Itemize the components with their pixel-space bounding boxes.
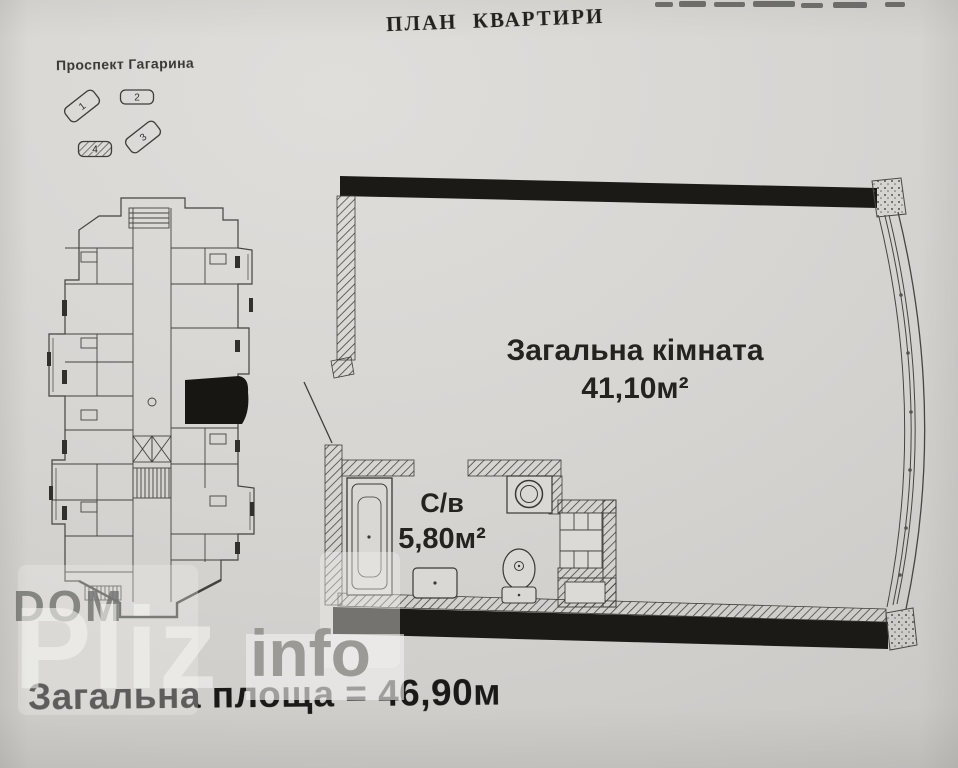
site-plan: 1 2 3 4 <box>55 80 185 170</box>
washbasin <box>413 568 457 598</box>
concrete-column-top <box>872 178 906 217</box>
bathroom-label: С/в <box>420 488 464 518</box>
apartment-plan: Загальна кімната 41,10м² С/в 5,80м² <box>295 165 940 660</box>
exterior-wall-top <box>340 176 877 208</box>
elevator-core <box>85 208 171 600</box>
building-marker-3: 3 <box>124 119 163 155</box>
washing-machine <box>507 476 552 513</box>
highlighted-apartment-unit <box>185 376 248 424</box>
bathroom-wall-top-left <box>342 460 414 476</box>
window-wall-curved <box>879 212 925 609</box>
scanned-floor-plan-page: ПЛАН КВАРТИРИ Проспект Гагарина 1 2 <box>0 0 958 768</box>
bathroom-wall-top-right <box>468 460 561 476</box>
building-number: 2 <box>134 93 140 104</box>
total-area-label: Загальна площа = 46,90м <box>28 672 501 719</box>
street-label: Проспект Гагарина <box>56 55 194 73</box>
ventilation-duct <box>558 500 616 607</box>
floor-key-plan <box>25 190 275 625</box>
bathtub <box>347 478 392 595</box>
building-marker-4-highlighted: 4 <box>79 142 112 157</box>
concrete-column-bottom <box>886 608 917 650</box>
building-number: 4 <box>92 145 98 156</box>
building-number: 1 <box>77 100 89 112</box>
building-marker-2: 2 <box>121 90 154 104</box>
toilet <box>502 549 536 603</box>
bathroom-area: 5,80м² <box>398 523 486 555</box>
wall-left-outer <box>337 196 355 360</box>
entry-wall-stub <box>331 357 354 378</box>
building-number: 3 <box>138 131 150 143</box>
building-marker-1: 1 <box>63 88 102 124</box>
main-room-area: 41,10м² <box>581 372 688 405</box>
bathroom-wall-left <box>325 445 342 605</box>
page-title: ПЛАН КВАРТИРИ <box>386 4 607 37</box>
entrance-door-leaf <box>304 382 332 443</box>
main-room-label: Загальна кімната <box>506 334 763 367</box>
